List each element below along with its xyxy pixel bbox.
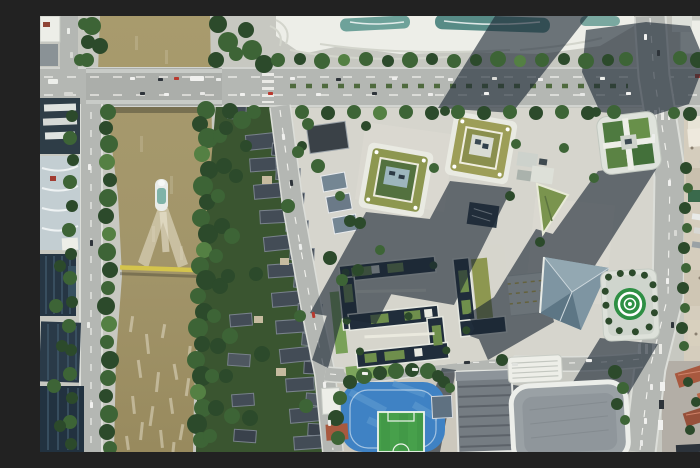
- tower-c: [596, 111, 663, 176]
- bus: [190, 76, 204, 81]
- aerial-photo: Top-down aerial drone photograph of a ri…: [40, 16, 700, 452]
- tower-b: [444, 111, 518, 185]
- helipad-tower: [600, 268, 660, 341]
- tower-a: [358, 142, 434, 218]
- field-shed: [431, 395, 452, 418]
- aerial-scene: [40, 16, 700, 452]
- ribbed-hall: [456, 370, 515, 452]
- rounded-hall: [510, 381, 629, 452]
- striped-roof: [507, 355, 562, 384]
